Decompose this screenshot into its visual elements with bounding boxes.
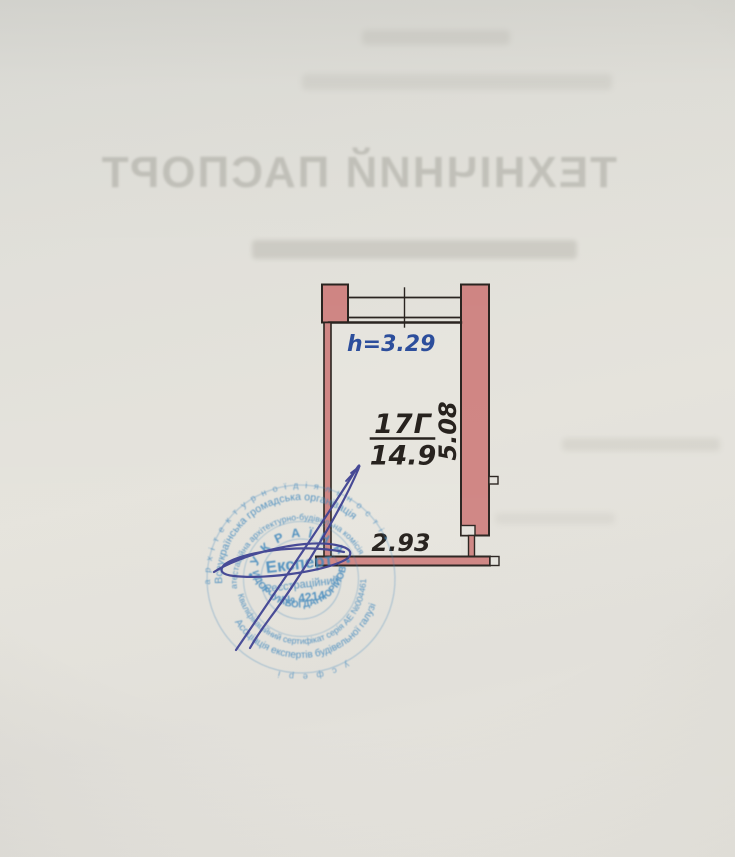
right-wall-notch	[461, 526, 475, 536]
window	[348, 288, 461, 327]
right-wall	[461, 285, 489, 536]
right-wall-tab	[489, 477, 498, 485]
stamp-outer-ring-bottom-text: у с ф е р і	[273, 659, 352, 686]
svg-text:у с ф е р і: у с ф е р і	[273, 659, 352, 686]
floor-plan-drawing: h=3.29 17Г 14.9 5.08 2.93 а р х і т е к …	[0, 0, 735, 857]
room-number-label: 17Г	[374, 409, 433, 440]
room-area-label: 14.9	[370, 441, 437, 472]
right-thin-wall	[469, 536, 475, 557]
svg-text:Асоціація експертів будівельно: Асоціація експертів будівельної галузі	[231, 600, 384, 669]
left-wall-pier	[322, 285, 348, 323]
floor-plan: h=3.29 17Г 14.9 5.08 2.93	[316, 285, 499, 566]
ceiling-height-label: h=3.29	[347, 332, 435, 357]
stamp-ring1-bottom-text: Асоціація експертів будівельної галузі	[231, 600, 384, 669]
dimension-right-label: 5.08	[434, 401, 462, 460]
bottom-wall-extension	[490, 557, 499, 566]
paper-sheet: ТЕХНІЧНИЙ ПАСПОРТ	[0, 0, 735, 857]
